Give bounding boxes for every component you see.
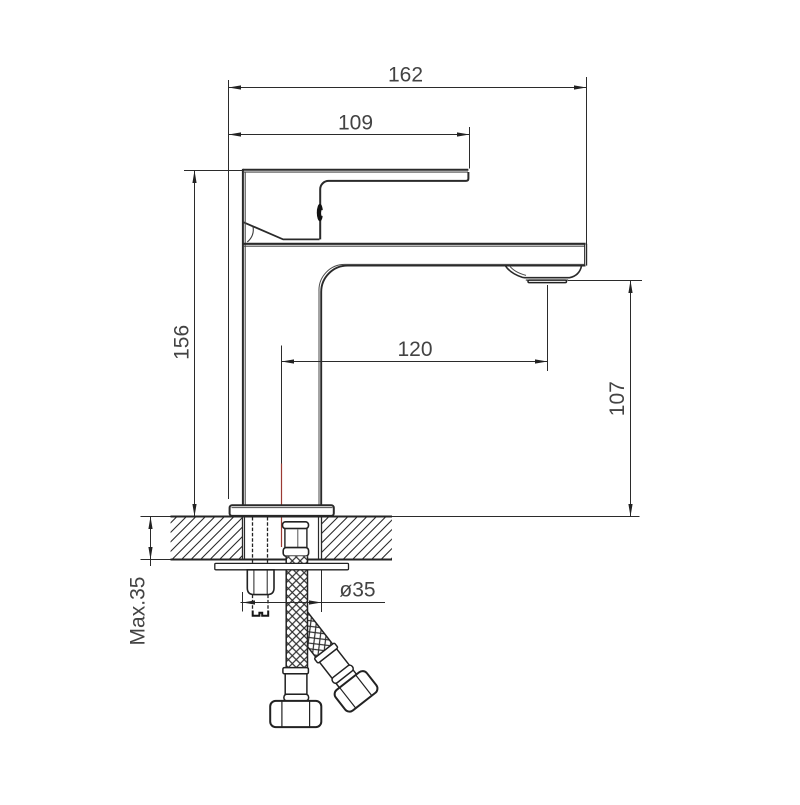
svg-text:107: 107 xyxy=(606,381,629,416)
svg-text:109: 109 xyxy=(338,111,373,134)
svg-text:162: 162 xyxy=(388,63,423,86)
svg-text:120: 120 xyxy=(397,338,432,361)
svg-text:156: 156 xyxy=(170,325,193,360)
svg-text:ø35: ø35 xyxy=(339,578,375,601)
svg-text:Max.35: Max.35 xyxy=(127,577,150,646)
